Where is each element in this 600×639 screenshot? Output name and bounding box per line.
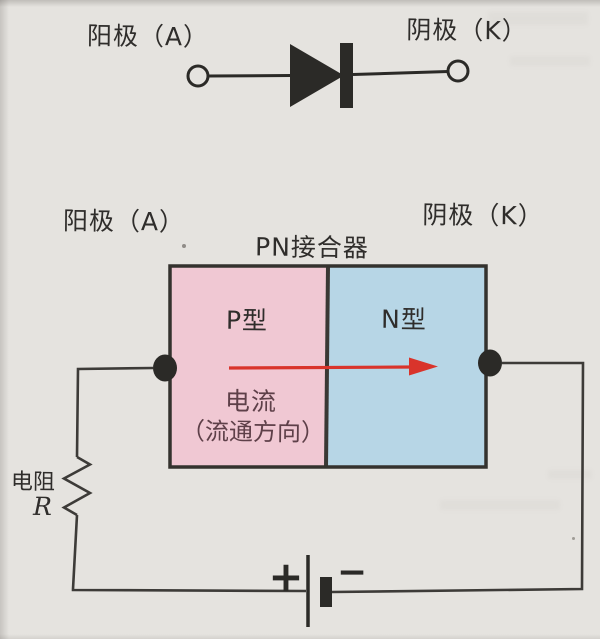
flow-direction-label: （流通方向） [173,411,333,448]
battery-negative-plate [320,577,332,607]
battery-minus-sign: − [337,552,367,593]
cathode-contact-dot [478,350,502,377]
p-type-label: P型 [197,300,297,337]
diode-triangle [290,44,344,107]
junction-cathode-label: 阴极（K） [403,195,563,233]
n-type-label: N型 [354,299,454,336]
diode-anode-terminal-circle [188,66,208,86]
battery-symbol: + − [268,552,367,627]
pn-junction-title: PN接合器 [232,227,392,265]
diode-cathode-lead [353,72,448,75]
anode-contact-dot [153,355,177,382]
wire-left-upper [77,368,153,457]
current-arrow-shaft [229,367,412,368]
resistor-symbol-label: R [28,492,58,521]
circuit-diagram-canvas: + − [0,0,600,639]
resistor-zigzag [64,457,90,515]
diode-symbol [188,43,468,108]
diode-cathode-terminal-circle [448,61,468,81]
diode-anode-lead [208,76,291,77]
diode-anode-label: 阳极（A） [68,16,228,54]
diode-cathode-label: 阴极（K） [387,10,547,48]
junction-anode-label: 阳极（A） [44,201,204,239]
diode-cathode-bar [340,43,353,108]
battery-plus-sign: + [268,552,303,601]
textbook-page: + − 阳极（A） 阴极（K） 阳极（A） 阴极（K） PN接合器 P型 N型 … [0,0,600,639]
